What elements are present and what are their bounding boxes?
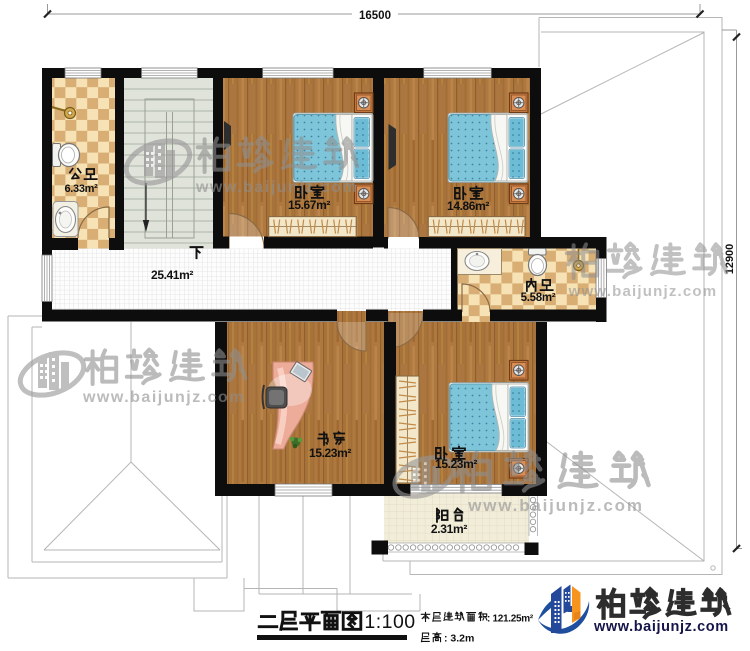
svg-text:15.23m²: 15.23m² (435, 457, 477, 471)
svg-text:14.86m²: 14.86m² (447, 199, 489, 213)
svg-text:15.23m²: 15.23m² (309, 446, 351, 460)
svg-text:www.baijunjz.com: www.baijunjz.com (593, 619, 729, 635)
svg-text:www.baijunjz.com: www.baijunjz.com (195, 179, 358, 196)
svg-text:2.31m²: 2.31m² (431, 522, 468, 536)
svg-text:: 121.25m²: : 121.25m² (487, 614, 534, 625)
svg-text:25.41m²: 25.41m² (151, 268, 193, 282)
svg-text:15.67m²: 15.67m² (288, 198, 330, 212)
svg-text:6.33m²: 6.33m² (64, 183, 98, 195)
svg-text:www.baijunjz.com: www.baijunjz.com (82, 389, 245, 406)
svg-text:16500: 16500 (359, 10, 391, 22)
svg-text:www.baijunjz.com: www.baijunjz.com (568, 283, 718, 300)
svg-text:www.baijunjz.com: www.baijunjz.com (467, 496, 644, 515)
svg-text:: 3.2m: : 3.2m (444, 633, 474, 645)
svg-text:5.58m²: 5.58m² (521, 292, 556, 304)
svg-text:1:100: 1:100 (364, 611, 415, 633)
